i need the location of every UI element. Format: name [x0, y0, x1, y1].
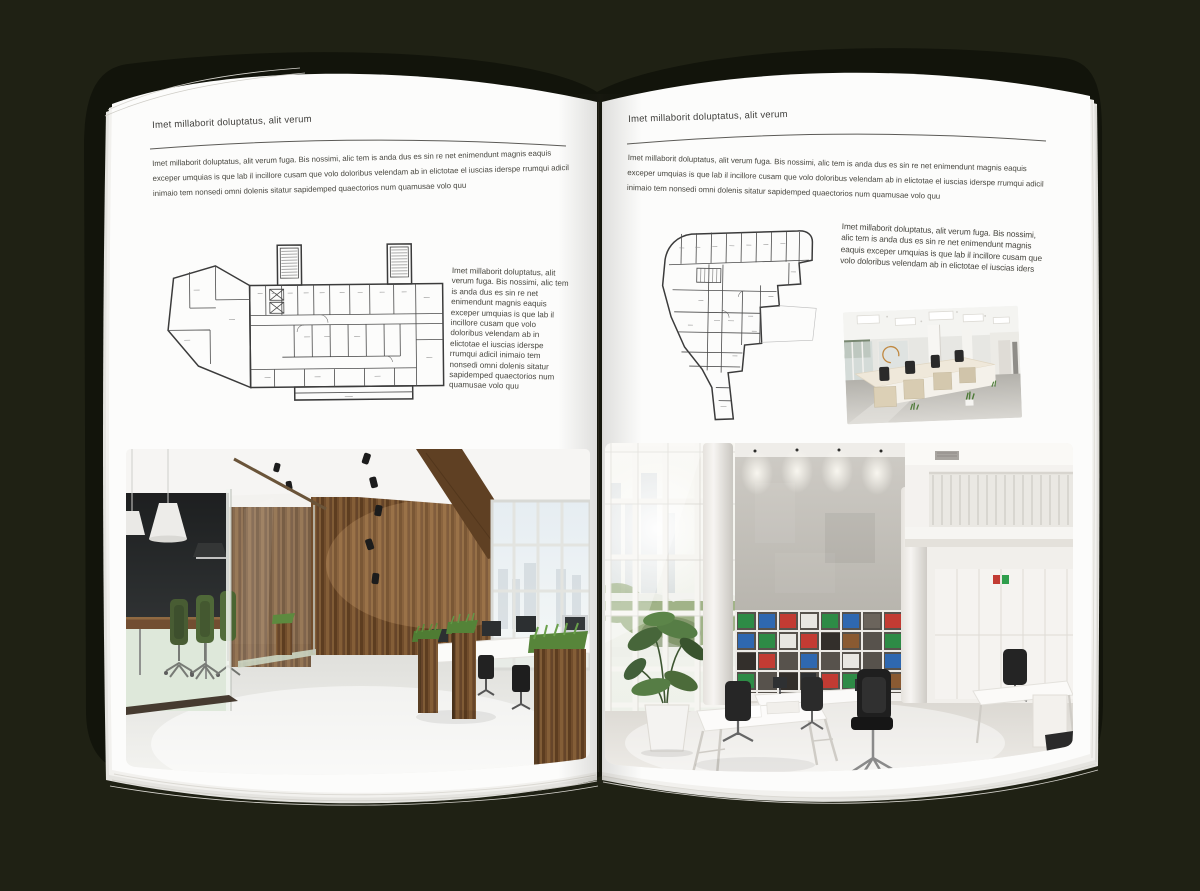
- right-side-paragraph: Imet millaborit doluptatus, alit verum f…: [840, 221, 1044, 275]
- right-page-photo: [605, 443, 1073, 787]
- interior-walls: [167, 264, 443, 395]
- mezzanine-balcony: [905, 443, 1073, 547]
- white-office-scene: [605, 443, 1073, 787]
- dimension-marks: [677, 242, 797, 408]
- stair-towers: [277, 244, 411, 285]
- left-side-paragraph: Imet millaborit doluptatus, alit verum f…: [449, 266, 572, 394]
- interior-walls: [667, 230, 810, 402]
- right-floor-plan-drawing: [646, 219, 837, 424]
- right-page-small-photo: [843, 306, 1022, 425]
- concrete-feature-wall: [735, 443, 905, 611]
- loft-office-scene: [126, 449, 590, 785]
- column: [703, 443, 733, 705]
- open-office-scene: [843, 306, 1022, 425]
- dimension-marks: [184, 288, 433, 399]
- open-magazine-mockup: Imet millaborit doluptatus, alit verum I…: [0, 0, 1200, 891]
- cabinet-wall: [927, 547, 1073, 703]
- left-page-photo: [126, 449, 590, 785]
- left-floor-plan-drawing: [153, 227, 447, 418]
